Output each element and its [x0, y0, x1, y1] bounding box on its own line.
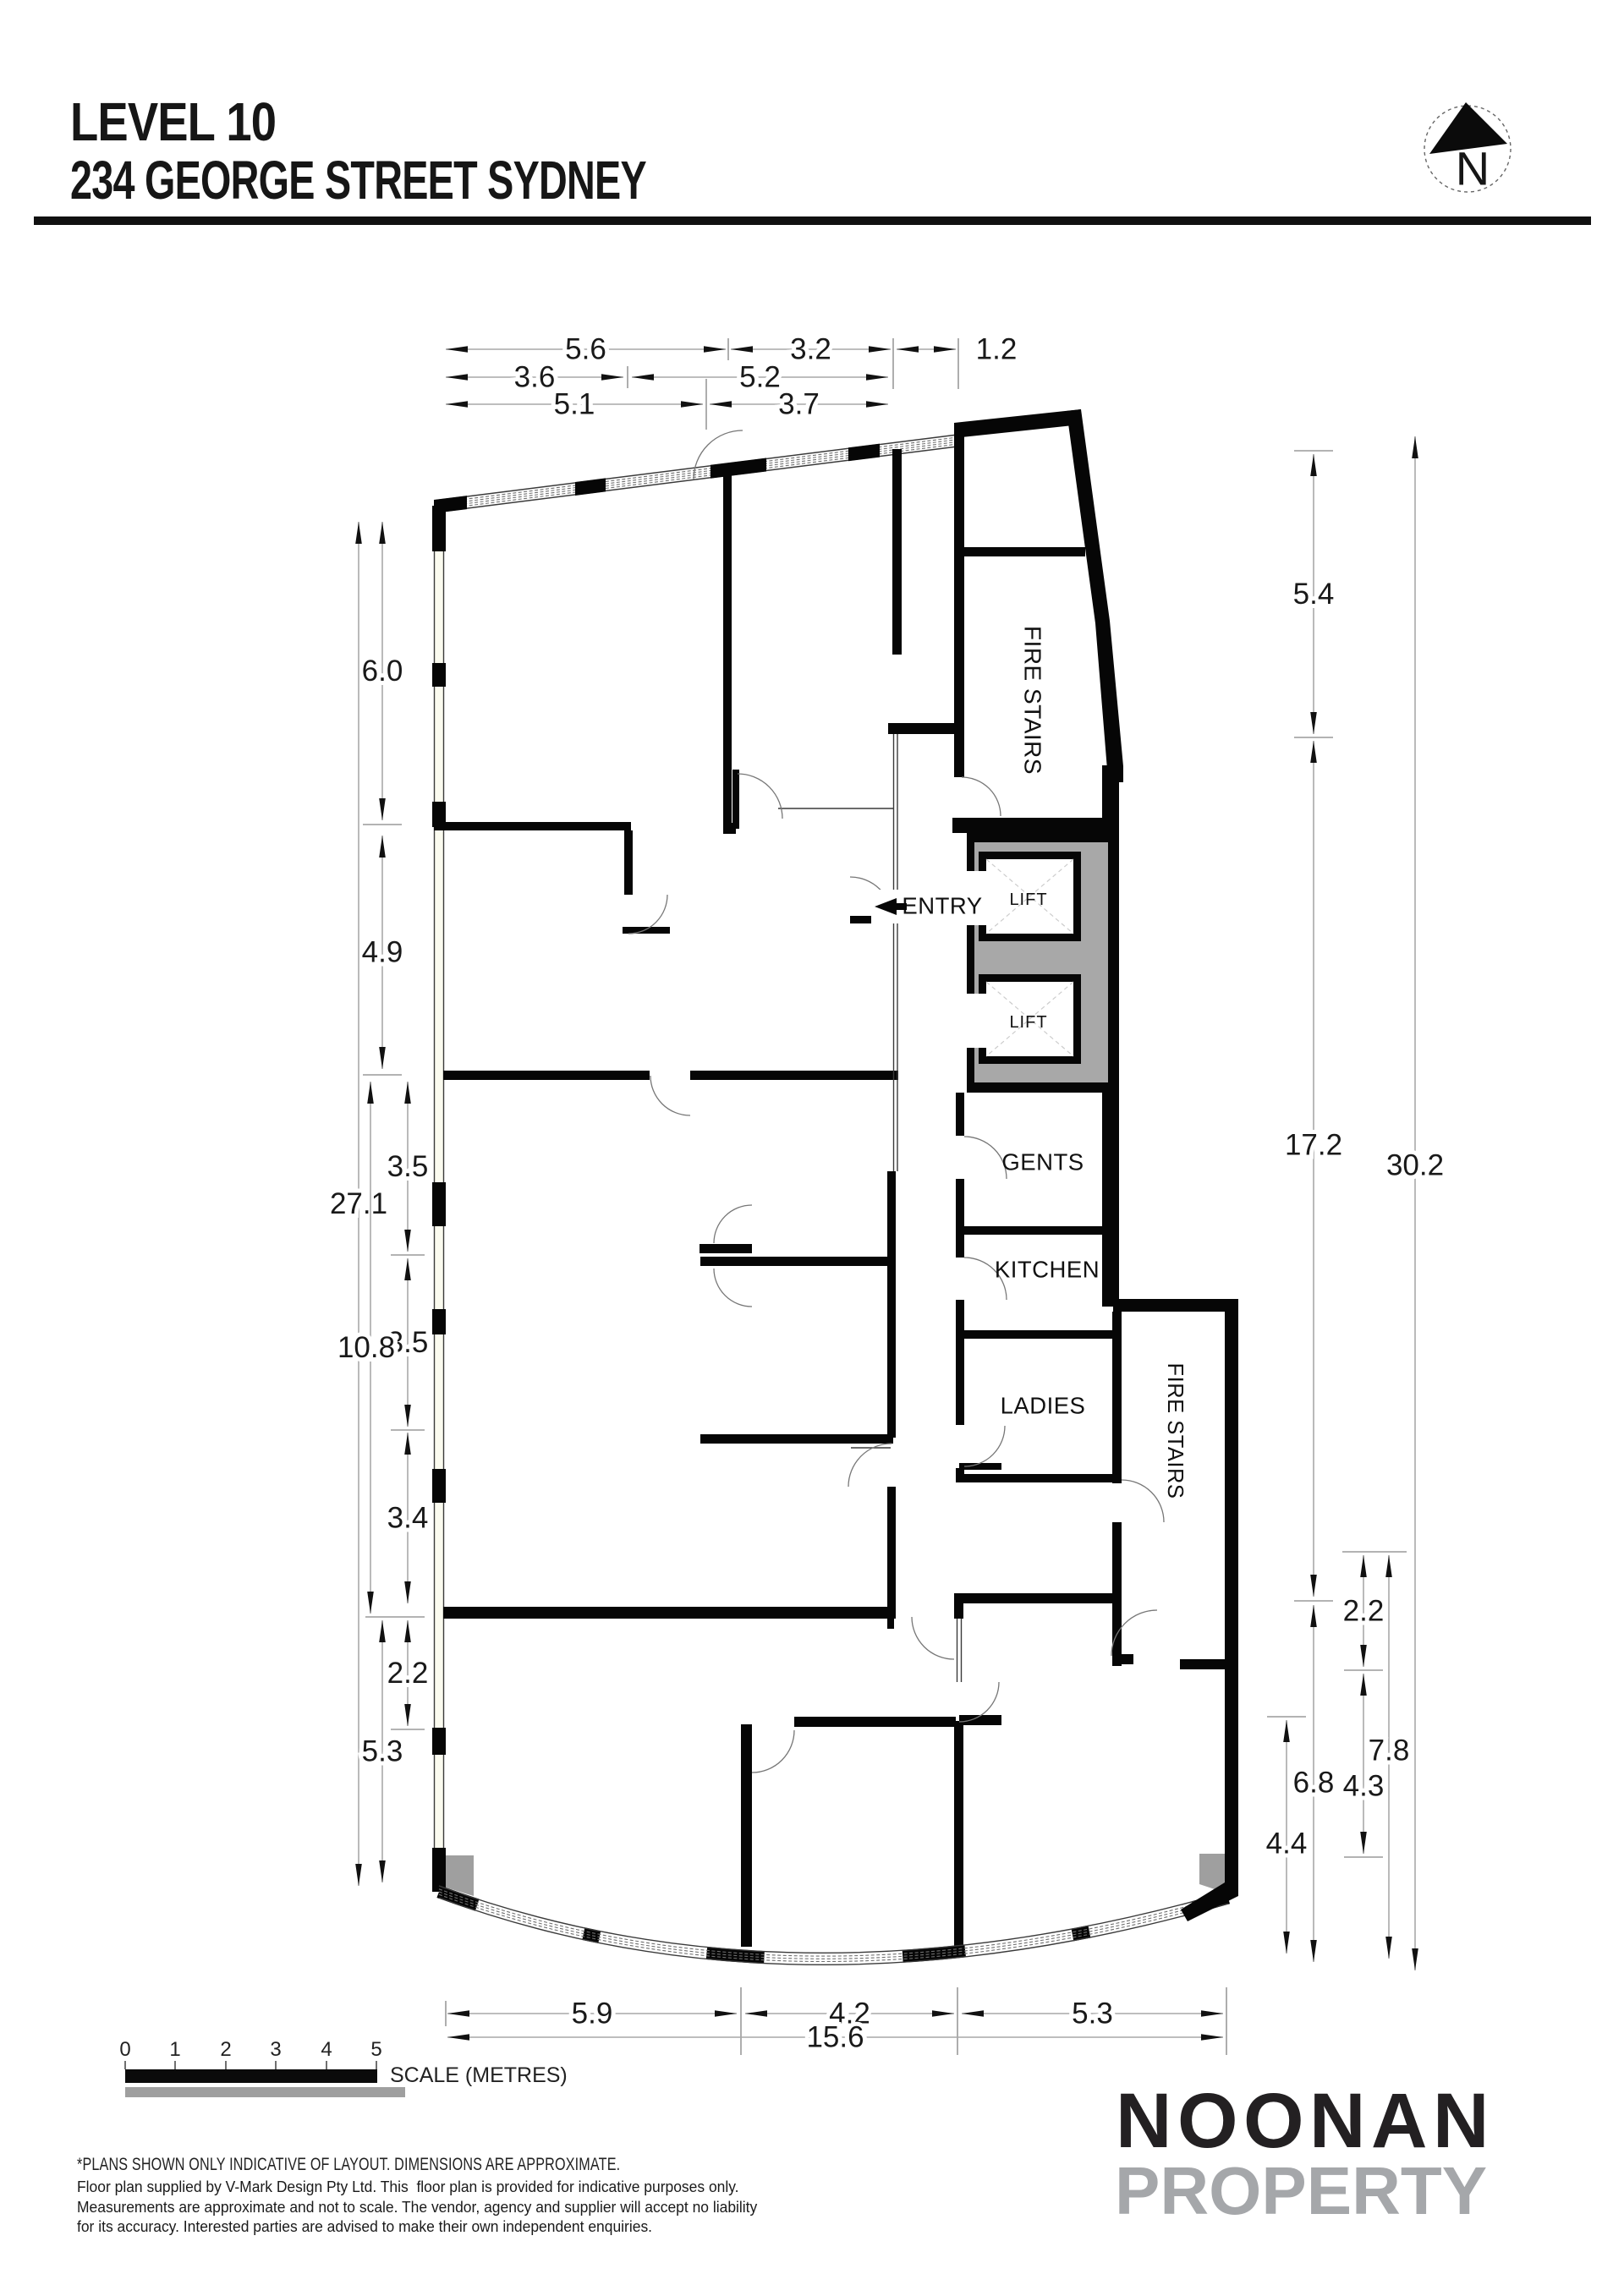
svg-text:4.3: 4.3 — [1343, 1770, 1385, 1803]
svg-text:5.3: 5.3 — [1072, 1997, 1113, 2030]
svg-text:1: 1 — [169, 2038, 180, 2061]
svg-text:SCALE (METRES): SCALE (METRES) — [390, 2063, 568, 2087]
svg-text:5.3: 5.3 — [362, 1735, 403, 1768]
svg-text:5.1: 5.1 — [554, 388, 595, 421]
svg-text:FIRE STAIRS: FIRE STAIRS — [1163, 1363, 1187, 1499]
svg-text:3: 3 — [270, 2038, 281, 2061]
svg-text:2: 2 — [220, 2038, 231, 2061]
svg-text:4.9: 4.9 — [362, 936, 403, 969]
svg-text:LADIES: LADIES — [1001, 1393, 1086, 1419]
svg-text:ENTRY: ENTRY — [902, 893, 982, 919]
svg-text:0: 0 — [119, 2038, 130, 2061]
svg-text:5.9: 5.9 — [572, 1997, 613, 2030]
svg-text:N: N — [1456, 142, 1490, 195]
svg-text:3.2: 3.2 — [790, 333, 831, 366]
svg-text:3.4: 3.4 — [387, 1502, 429, 1535]
svg-text:KITCHEN: KITCHEN — [995, 1257, 1100, 1283]
svg-text:5.2: 5.2 — [739, 361, 781, 394]
svg-text:2.2: 2.2 — [1343, 1595, 1385, 1628]
svg-text:3.6: 3.6 — [514, 361, 556, 394]
svg-text:1.2: 1.2 — [976, 333, 1018, 366]
svg-text:5: 5 — [370, 2038, 381, 2061]
svg-text:30.2: 30.2 — [1386, 1149, 1444, 1182]
svg-text:LIFT: LIFT — [1009, 890, 1047, 909]
svg-text:6.0: 6.0 — [362, 655, 403, 688]
svg-text:2.2: 2.2 — [387, 1657, 429, 1690]
svg-text:4.4: 4.4 — [1266, 1827, 1308, 1860]
svg-text:17.2: 17.2 — [1285, 1129, 1342, 1162]
svg-text:3.5: 3.5 — [387, 1150, 429, 1183]
svg-text:4: 4 — [321, 2038, 332, 2061]
svg-text:FIRE STAIRS: FIRE STAIRS — [1020, 626, 1046, 775]
svg-text:15.6: 15.6 — [806, 2021, 864, 2054]
svg-text:GENTS: GENTS — [1001, 1149, 1084, 1175]
svg-text:5.6: 5.6 — [565, 333, 606, 366]
svg-text:3.7: 3.7 — [778, 388, 820, 421]
svg-text:7.8: 7.8 — [1369, 1734, 1410, 1767]
svg-text:10.8: 10.8 — [337, 1331, 395, 1364]
svg-text:6.8: 6.8 — [1293, 1767, 1335, 1800]
svg-text:27.1: 27.1 — [330, 1187, 387, 1220]
svg-text:LIFT: LIFT — [1009, 1013, 1047, 1032]
svg-text:5.4: 5.4 — [1293, 578, 1335, 611]
